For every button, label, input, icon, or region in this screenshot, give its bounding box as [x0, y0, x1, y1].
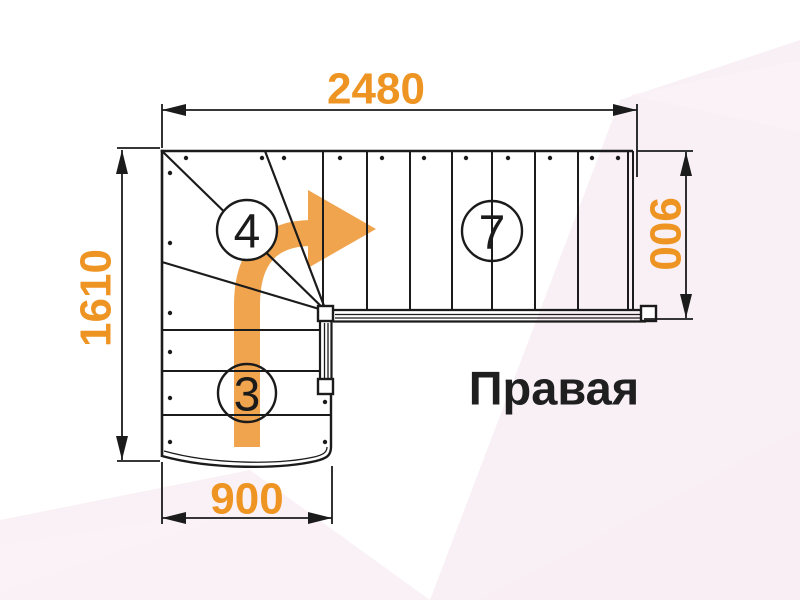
- dimension-top-value: 2480: [327, 65, 425, 114]
- orientation-title: Правая: [469, 362, 639, 415]
- dimension-right-value: 900: [641, 197, 690, 270]
- dimension-left-value: 1610: [72, 249, 121, 347]
- newel-post-lower: [318, 379, 333, 394]
- lower-steps-label: 3: [234, 369, 261, 422]
- newel-post-corner: [318, 306, 333, 321]
- stair-plan-diagram: 4 7 3 2480 1610 900 900 Правая: [0, 0, 800, 600]
- upper-steps-label: 7: [479, 207, 506, 260]
- dimension-bottom-value: 900: [210, 475, 283, 524]
- stair-plan-svg: 4 7 3 2480 1610 900 900 Правая: [0, 0, 800, 600]
- winder-steps-label: 4: [234, 206, 261, 259]
